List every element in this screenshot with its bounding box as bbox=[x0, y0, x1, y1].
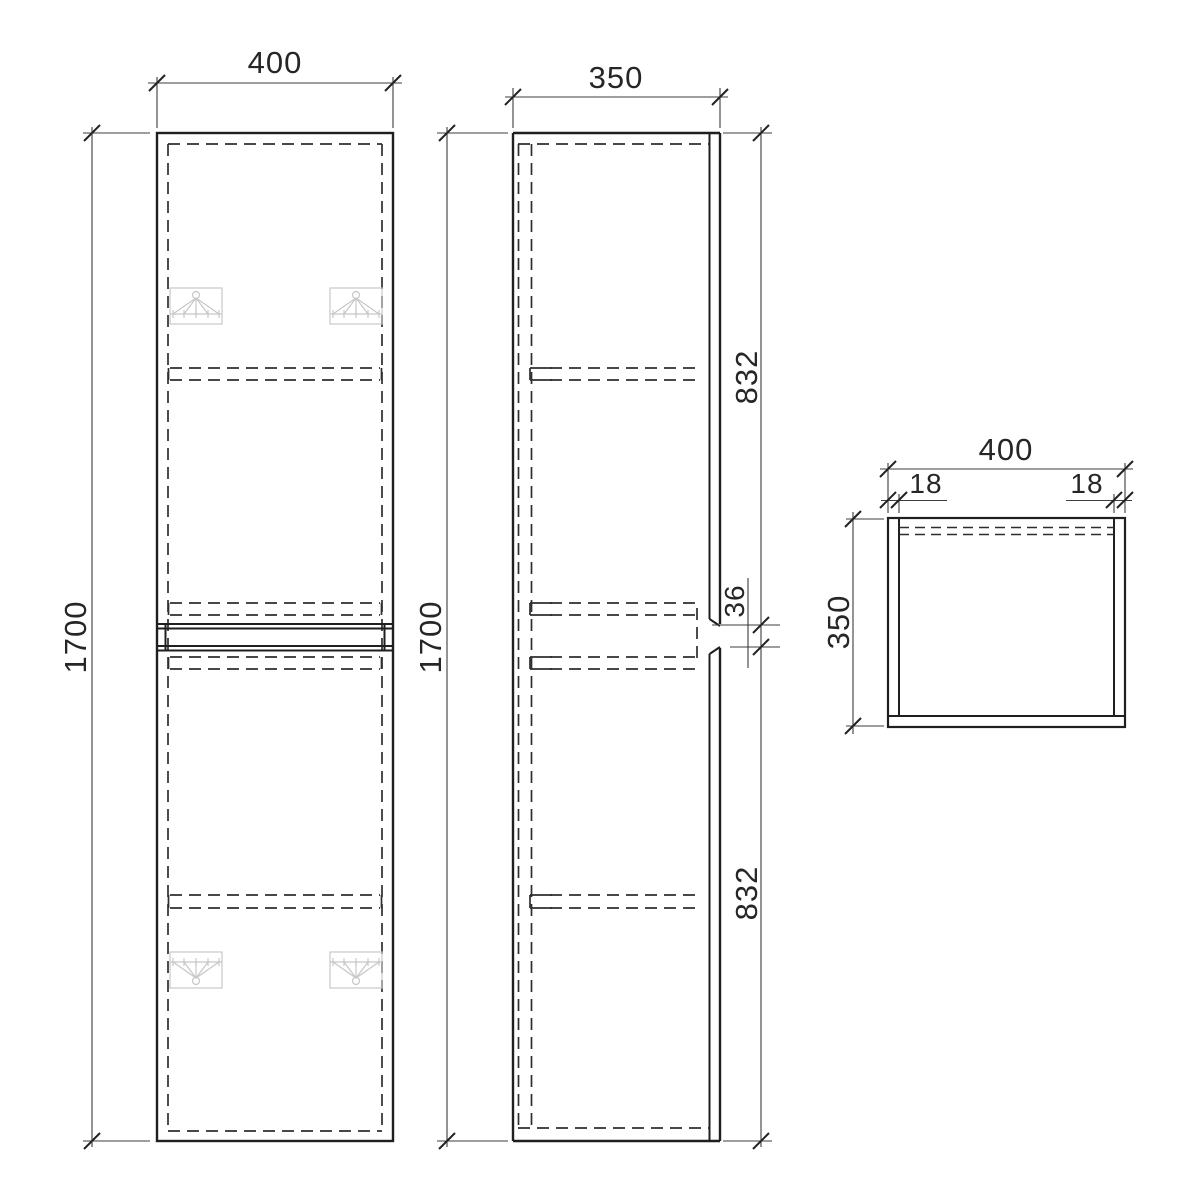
cabinet-drawing-svg: 400 1700 bbox=[0, 0, 1200, 1200]
side-depth-dimension: 350 bbox=[505, 60, 728, 128]
front-height-dim-text: 1700 bbox=[58, 601, 93, 674]
front-width-dim-text: 400 bbox=[248, 45, 303, 80]
top-left-panel-dimension: 18 bbox=[880, 468, 947, 513]
front-height-dimension: 1700 bbox=[58, 125, 150, 1149]
side-view: 350 1700 bbox=[413, 60, 780, 1149]
side-view-shelves bbox=[530, 368, 697, 908]
top-right-panel-dimension: 18 bbox=[1066, 468, 1133, 513]
upper-door-dim-text: 832 bbox=[729, 350, 764, 405]
top-depth-dim-text: 350 bbox=[821, 595, 856, 650]
top-view-outline bbox=[888, 518, 1125, 727]
top-right-panel-dim-text: 18 bbox=[1070, 468, 1103, 499]
side-height-dimension: 1700 bbox=[413, 125, 508, 1149]
top-left-panel-dim-text: 18 bbox=[909, 468, 942, 499]
door-gap-dim-text: 36 bbox=[719, 584, 750, 617]
technical-drawing-page: 400 1700 bbox=[0, 0, 1200, 1200]
front-view: 400 1700 bbox=[58, 45, 402, 1149]
top-view: 400 18 18 bbox=[821, 432, 1133, 734]
side-view-door-face bbox=[710, 133, 721, 1141]
front-view-outline bbox=[157, 133, 393, 1141]
top-depth-dimension: 350 bbox=[821, 511, 884, 734]
side-depth-dim-text: 350 bbox=[589, 60, 644, 95]
top-width-dim-text: 400 bbox=[979, 432, 1034, 467]
side-section-dimension-chain: 832 36 832 bbox=[712, 125, 780, 1149]
side-view-outline bbox=[513, 133, 720, 1141]
front-width-dimension: 400 bbox=[148, 45, 402, 128]
side-height-dim-text: 1700 bbox=[413, 601, 448, 674]
lower-door-dim-text: 832 bbox=[729, 866, 764, 921]
side-view-hidden-carcass-lines bbox=[518, 144, 709, 1128]
